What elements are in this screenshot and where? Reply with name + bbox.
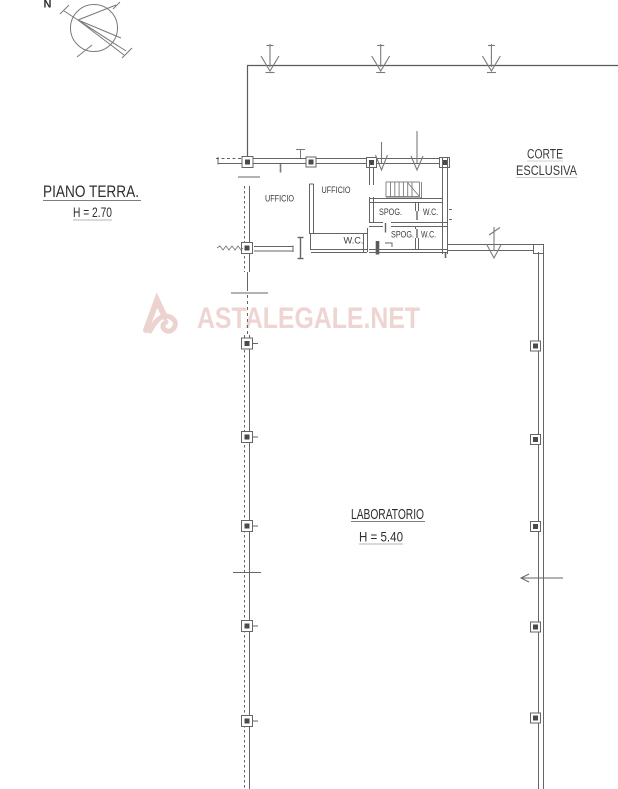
svg-text:H = 5.40: H = 5.40 bbox=[359, 529, 403, 545]
svg-text:ESCLUSIVA: ESCLUSIVA bbox=[516, 163, 577, 178]
svg-text:UFFICIO: UFFICIO bbox=[265, 194, 294, 204]
svg-text:CORTE: CORTE bbox=[527, 147, 563, 162]
svg-text:PIANO TERRA.: PIANO TERRA. bbox=[43, 182, 139, 201]
svg-text:H = 2.70: H = 2.70 bbox=[73, 204, 112, 220]
svg-text:LABORATORIO: LABORATORIO bbox=[351, 507, 424, 523]
svg-text:W.C.: W.C. bbox=[421, 230, 436, 240]
svg-text:UFFICIO: UFFICIO bbox=[322, 185, 351, 195]
svg-text:W.C.: W.C. bbox=[423, 207, 438, 217]
svg-text:SPOG.: SPOG. bbox=[379, 207, 402, 217]
svg-text:N: N bbox=[44, 0, 52, 11]
svg-text:ASTALEGALE.NET: ASTALEGALE.NET bbox=[197, 302, 420, 335]
svg-text:W.C.: W.C. bbox=[344, 236, 364, 246]
svg-text:SPOG.: SPOG. bbox=[391, 230, 414, 240]
